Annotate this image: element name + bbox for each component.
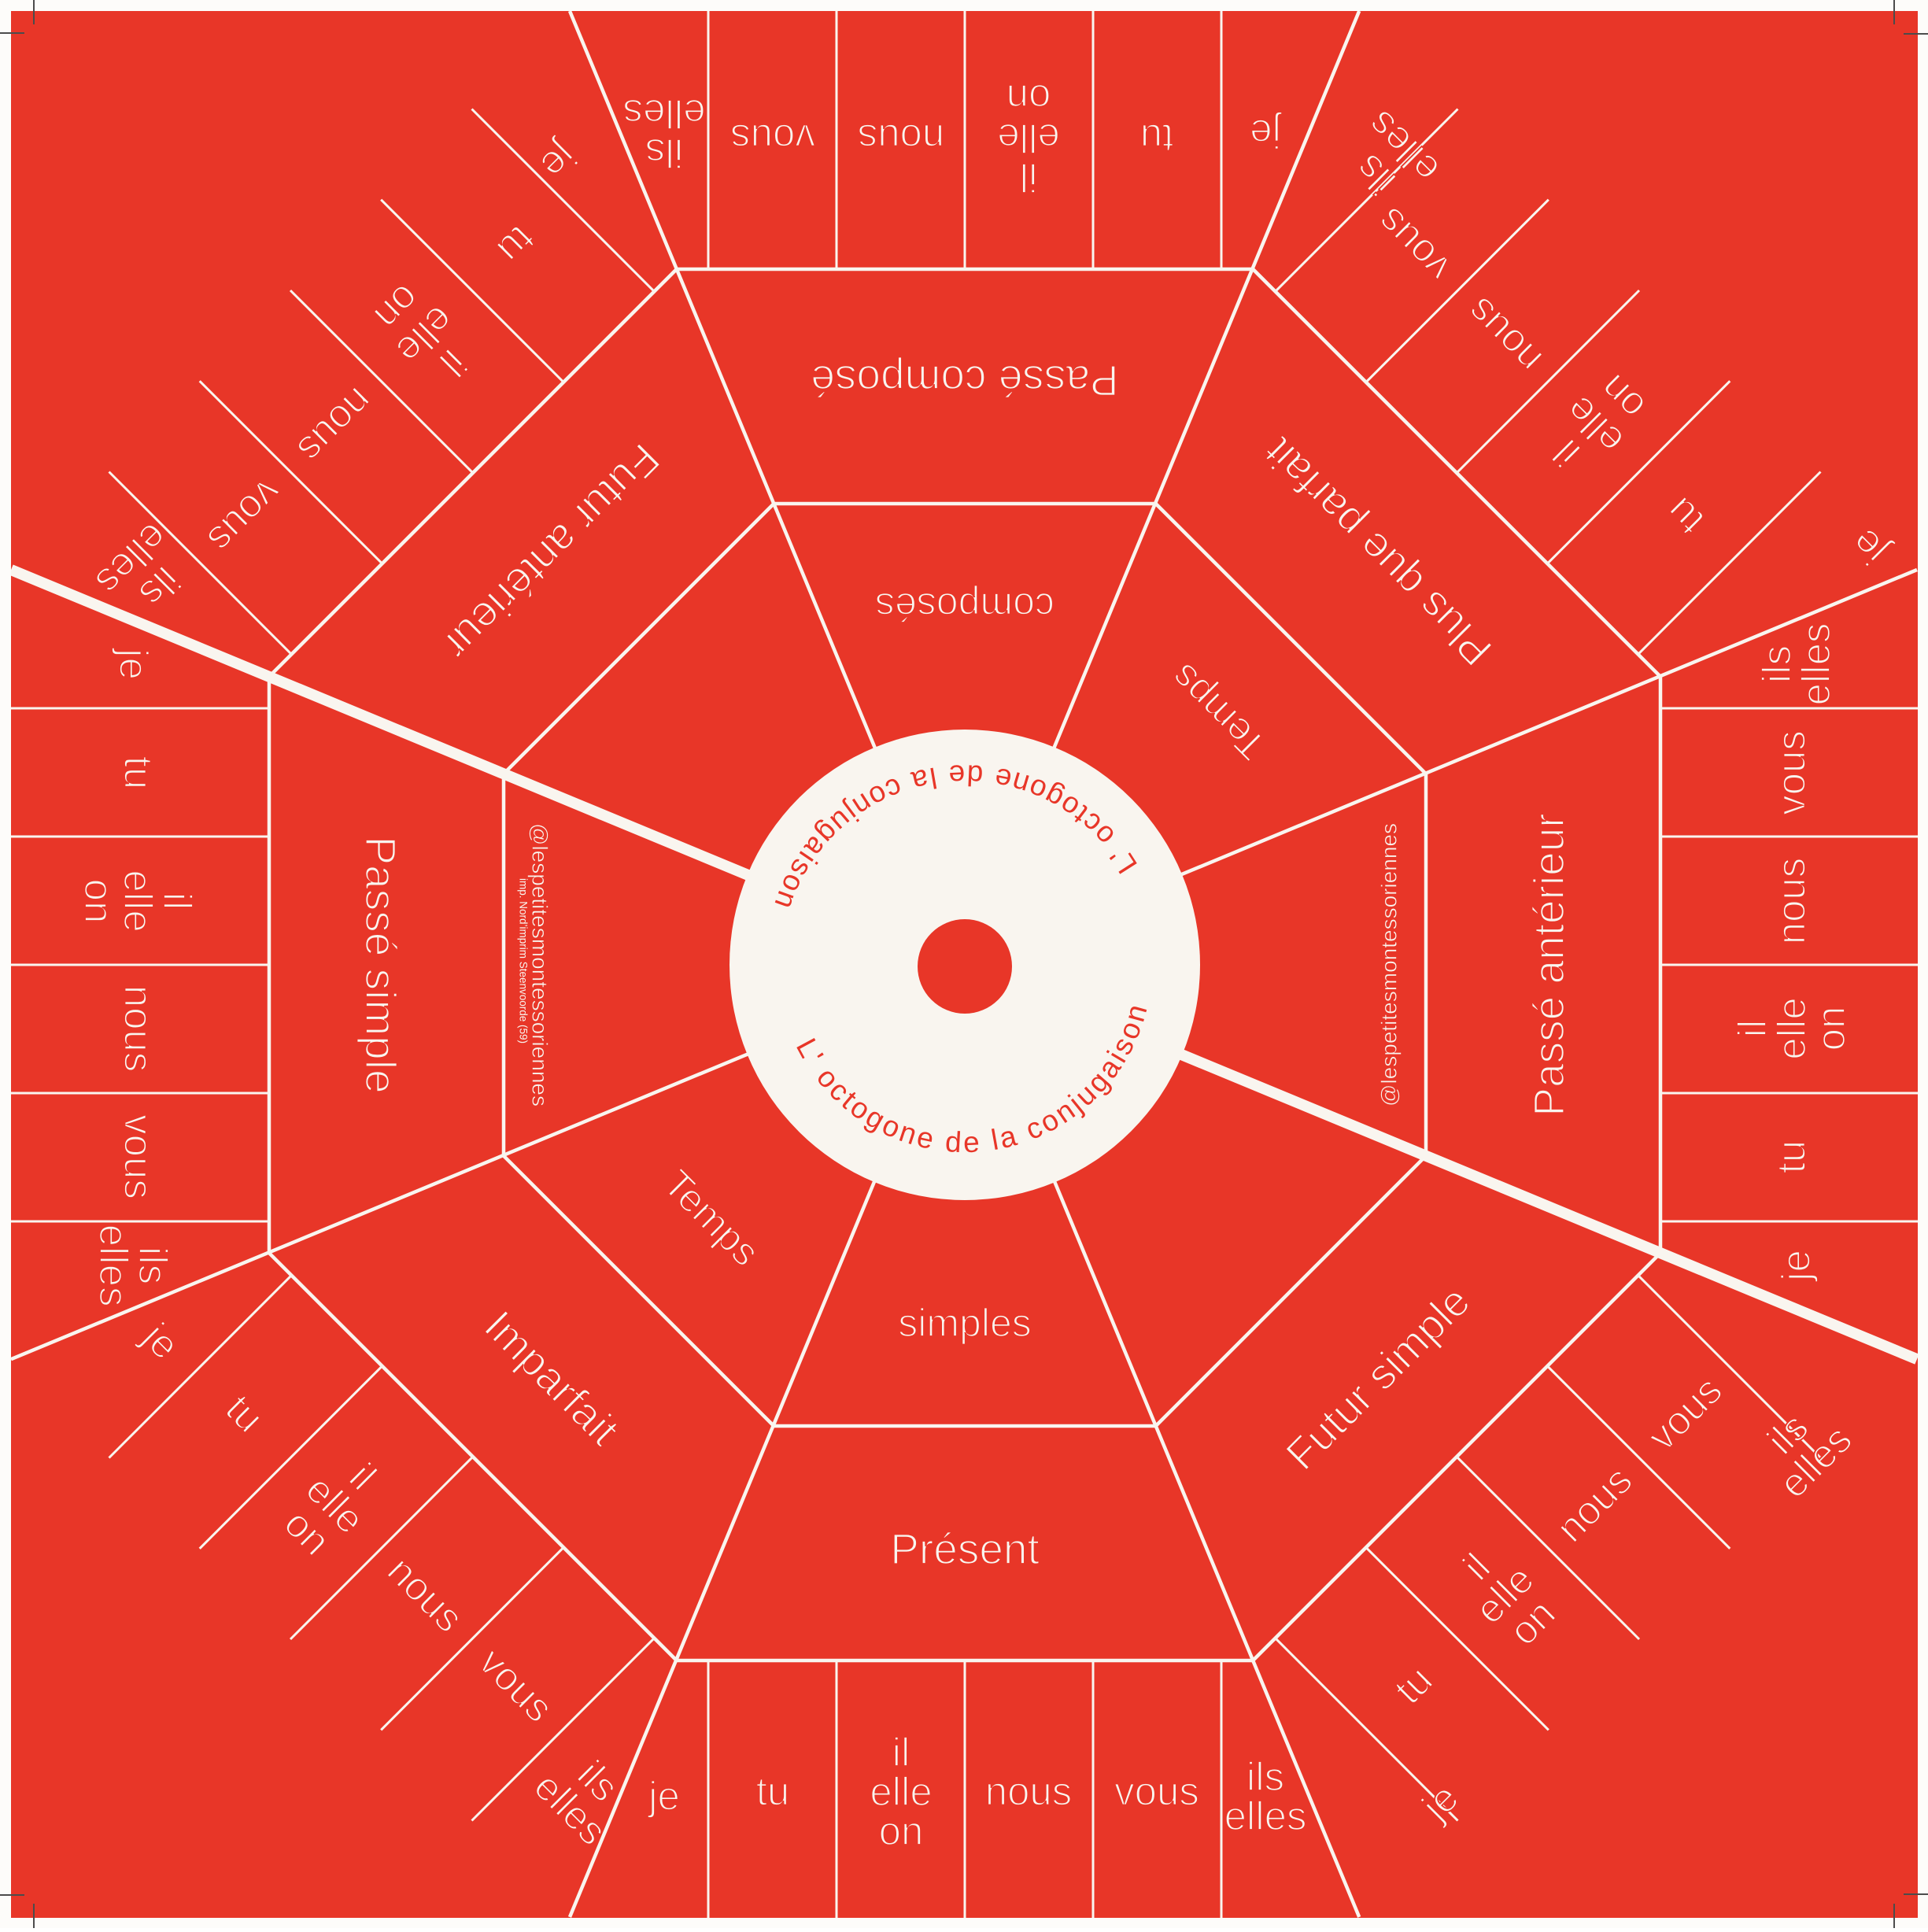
svg-text:je: je	[1250, 112, 1283, 157]
svg-text:@lespetitesmontessoriennes: @lespetitesmontessoriennes	[528, 823, 552, 1106]
svg-text:Passé composé: Passé composé	[811, 356, 1118, 405]
svg-text:vous: vous	[116, 1114, 161, 1199]
svg-text:Passé simple: Passé simple	[356, 836, 405, 1093]
svg-text:tu: tu	[116, 756, 161, 790]
svg-text:je: je	[1774, 1250, 1819, 1283]
svg-text:tu: tu	[756, 1769, 790, 1814]
svg-text:je: je	[647, 1774, 680, 1819]
svg-text:nous: nous	[858, 116, 945, 161]
svg-text:composés: composés	[875, 585, 1054, 629]
svg-text:vous: vous	[730, 116, 815, 161]
svg-text:simples: simples	[898, 1301, 1031, 1345]
svg-text:vous: vous	[1114, 1769, 1199, 1814]
svg-text:Passé antérieur: Passé antérieur	[1524, 813, 1573, 1116]
svg-text:tu: tu	[1769, 1140, 1814, 1174]
svg-text:tu: tu	[1140, 116, 1174, 161]
svg-text:nous: nous	[116, 985, 161, 1073]
svg-text:je: je	[112, 647, 157, 680]
svg-text:vous: vous	[1769, 730, 1814, 815]
svg-text:Présent: Présent	[890, 1524, 1040, 1573]
svg-text:nous: nous	[1769, 858, 1814, 945]
svg-text:imp. Nord’imprim Steenvoorde: imp. Nord’imprim Steenvoorde (59)	[518, 878, 530, 1044]
svg-text:nous: nous	[985, 1769, 1073, 1814]
svg-text:@lespetitesmontessoriennes: @lespetitesmontessoriennes	[1377, 823, 1402, 1106]
